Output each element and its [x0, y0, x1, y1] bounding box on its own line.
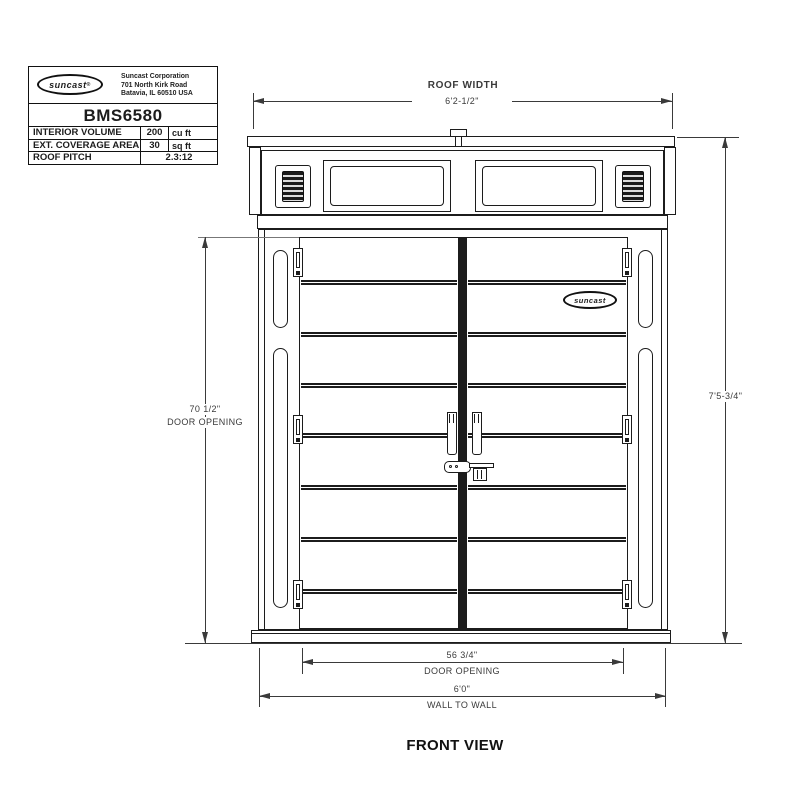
view-title: FRONT VIEW: [355, 737, 555, 755]
title-block: suncast® Suncast Corporation 701 North K…: [28, 66, 218, 165]
hasp-detail-line: [477, 470, 478, 479]
latch-hole: [449, 465, 452, 468]
overall-height-value: 7'5-3/4": [683, 391, 768, 402]
gable-vent-left-louvers: [282, 171, 304, 202]
spec-label: INTERIOR VOLUME: [29, 127, 141, 139]
door-left-rail: [301, 589, 457, 594]
hinge-pin: [296, 603, 300, 607]
spec-row-roof-pitch: ROOF PITCH 2.3:12: [29, 152, 217, 165]
hinge-slot: [296, 584, 300, 600]
door-height-label: DOOR OPENING: [155, 417, 255, 428]
wall-width-dim-line: [259, 696, 666, 697]
roof-cap-connector: [450, 129, 467, 137]
hinge-right-top: [622, 248, 632, 277]
latch-hole: [455, 465, 458, 468]
company-address: Suncast Corporation 701 North Kirk Road …: [121, 67, 193, 103]
door-width-arrow-left: [302, 659, 313, 665]
side-trim-right-upper: [638, 250, 653, 328]
wall-width-value: 6'0": [412, 684, 512, 695]
door-height-arrow-down: [202, 632, 208, 643]
door-right-rail: [468, 537, 626, 542]
hinge-slot: [625, 252, 629, 268]
spec-row-interior-volume: INTERIOR VOLUME 200 cu ft: [29, 127, 217, 140]
overall-height-arrow-down: [722, 632, 728, 643]
door-suncast-badge: suncast: [563, 291, 617, 309]
spec-unit: sq ft: [169, 140, 217, 152]
company-name: Suncast Corporation: [121, 73, 193, 82]
door-right-rail: [468, 485, 626, 490]
company-city: Batavia, IL 60510 USA: [121, 90, 193, 99]
model-number: BMS6580: [29, 104, 217, 127]
hinge-left-middle: [293, 415, 303, 444]
door-width-extension-right: [623, 648, 624, 674]
wall-width-arrow-right: [655, 693, 666, 699]
door-handle-right: [472, 412, 482, 455]
door-height-dim-line: [205, 237, 206, 643]
base-kickplate: [251, 630, 671, 643]
door-right-rail: [468, 280, 626, 285]
roof-width-value: 6'2-1/2": [412, 96, 512, 107]
transom-window-right-pane: [482, 166, 596, 206]
spec-row-coverage-area: EXT. COVERAGE AREA 30 sq ft: [29, 140, 217, 153]
door-width-dim-line: [302, 662, 623, 663]
spec-value: 200: [141, 127, 169, 139]
wall-width-arrow-left: [259, 693, 270, 699]
wall-width-label: WALL TO WALL: [412, 700, 512, 711]
wall-inner-line-right: [661, 229, 662, 630]
door-right-rail: [468, 332, 626, 337]
door-width-label: DOOR OPENING: [412, 666, 512, 677]
door-height-value: 70 1/2": [155, 404, 255, 415]
gable-panel: [261, 150, 664, 215]
hinge-pin: [625, 438, 629, 442]
door-width-value: 56 3/4": [412, 650, 512, 661]
handle-grip: [449, 414, 454, 423]
company-street: 701 North Kirk Road: [121, 82, 193, 91]
overall-height-dim-line: [725, 137, 726, 643]
spec-value: 30: [141, 140, 169, 152]
hinge-pin: [296, 271, 300, 275]
door-left-rail: [301, 383, 457, 388]
side-trim-left-lower: [273, 348, 288, 608]
padlock-latch-plate: [444, 461, 471, 473]
hinge-slot: [625, 419, 629, 435]
gable-bottom-band: [257, 215, 668, 229]
door-center-astragal: [459, 237, 466, 629]
roof-width-arrow-left: [253, 98, 264, 104]
spec-label: EXT. COVERAGE AREA: [29, 140, 141, 152]
gable-vent-right-louvers: [622, 171, 644, 202]
door-handle-left: [447, 412, 457, 455]
door-height-arrow-up: [202, 237, 208, 248]
hinge-left-top: [293, 248, 303, 277]
roof-width-extension-right: [672, 93, 673, 129]
overall-height-arrow-up: [722, 137, 728, 148]
hinge-pin: [625, 603, 629, 607]
door-right-rail: [468, 433, 626, 438]
base-inner-line: [252, 633, 670, 634]
spec-label: ROOF PITCH: [29, 152, 141, 165]
drawing-sheet: { "title_block": { "logo": "suncast", "r…: [0, 0, 800, 800]
roof-cap-seam-left: [455, 137, 456, 146]
hasp-detail-line: [481, 470, 482, 479]
handle-grip: [474, 414, 479, 423]
door-left-rail: [301, 280, 457, 285]
suncast-logo-text: suncast: [49, 80, 87, 90]
roof-width-arrow-right: [661, 98, 672, 104]
roof-width-extension-left: [253, 93, 254, 129]
door-left-rail: [301, 332, 457, 337]
title-block-header-row: suncast® Suncast Corporation 701 North K…: [29, 67, 217, 104]
roof-width-title: ROOF WIDTH: [363, 80, 563, 91]
hinge-left-bottom: [293, 580, 303, 609]
side-trim-right-lower: [638, 348, 653, 608]
ground-line: [185, 643, 742, 644]
roof-cap-seam-right: [461, 137, 462, 146]
hinge-right-middle: [622, 415, 632, 444]
door-right-rail: [468, 589, 626, 594]
suncast-logo: suncast®: [37, 74, 103, 95]
hinge-slot: [296, 252, 300, 268]
door-left-rail: [301, 485, 457, 490]
door-right-rail: [468, 383, 626, 388]
wall-inner-line-left: [264, 229, 265, 630]
transom-window-left-pane: [330, 166, 444, 206]
hinge-pin: [296, 438, 300, 442]
roof-edge-trim-right: [664, 147, 676, 215]
logo-cell: suncast®: [29, 67, 121, 103]
spec-unit: cu ft: [169, 127, 217, 139]
hinge-pin: [625, 271, 629, 275]
overall-height-extension-top: [677, 137, 739, 138]
latch-hasp-body: [473, 468, 487, 481]
registered-mark: ®: [87, 82, 91, 88]
door-left-rail: [301, 433, 457, 438]
roof-edge-trim-left: [249, 147, 261, 215]
hinge-right-bottom: [622, 580, 632, 609]
hinge-slot: [296, 419, 300, 435]
spec-value: 2.3:12: [141, 152, 217, 165]
door-left-rail: [301, 537, 457, 542]
hinge-slot: [625, 584, 629, 600]
side-trim-left-upper: [273, 250, 288, 328]
door-width-arrow-right: [612, 659, 623, 665]
